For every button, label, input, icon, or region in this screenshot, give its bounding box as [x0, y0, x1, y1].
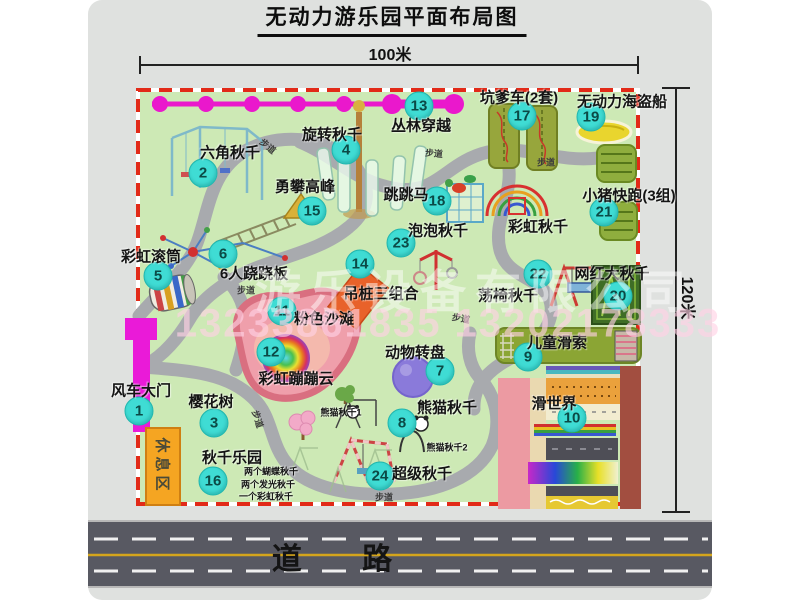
- extra-label-3: 熊猫秋千2: [426, 441, 467, 454]
- attraction-15-label: 勇攀高峰: [275, 176, 335, 197]
- attraction-4-label: 旋转秋千: [302, 124, 362, 145]
- attraction-18-label: 跳跳马: [383, 184, 428, 205]
- walkway-label-2: 步道: [424, 146, 443, 161]
- attraction-24-badge: 24: [366, 462, 395, 491]
- attraction-8-badge: 8: [388, 409, 417, 438]
- attraction-1-badge: 1: [125, 397, 154, 426]
- attraction-3-label: 樱花树: [188, 391, 233, 412]
- attraction-23-label: 泡泡秋千: [408, 220, 468, 241]
- page-title: 无动力游乐园平面布局图: [258, 1, 527, 37]
- extra-label-6: 一个彩虹秋千: [239, 490, 293, 503]
- attraction-12-label: 彩虹蹦蹦云: [258, 368, 333, 389]
- attraction-24-label: 超级秋千: [392, 463, 452, 484]
- attraction-2-badge: 2: [189, 159, 218, 188]
- attraction-16-badge: 16: [199, 467, 228, 496]
- attraction-13-label: 丛林穿越: [391, 115, 451, 136]
- attraction-3-badge: 3: [200, 409, 229, 438]
- rest-area-label: 休息区: [153, 437, 174, 494]
- walkway-label-6: 步道: [375, 491, 393, 504]
- width-dimension-label: 100米: [369, 41, 412, 65]
- attraction-17-label: 坑爹车(2套): [480, 87, 558, 108]
- attraction-19-label: 无动力海盗船: [577, 91, 667, 112]
- extra-label-2: 熊猫秋千1: [320, 406, 361, 419]
- extra-label-1: 彩虹秋千: [508, 216, 568, 237]
- attraction-8-label: 熊猫秋千: [417, 397, 477, 418]
- attraction-5-label: 彩虹滚筒: [121, 246, 181, 267]
- attraction-2-label: 六角秋千: [200, 142, 260, 163]
- watermark-phone: 13233861835 13202178333: [175, 302, 722, 347]
- walkway-label-3: 步道: [537, 156, 555, 169]
- walkway-label-4: 步道: [237, 284, 255, 297]
- attraction-1-label: 风车大门: [111, 380, 171, 401]
- road-label: 道 路: [272, 534, 418, 578]
- attraction-21-label: 小猪快跑(3组): [582, 185, 675, 206]
- attraction-10-label: 滑世界: [531, 393, 576, 414]
- attraction-15-badge: 15: [298, 197, 327, 226]
- screenshot-root: 无动力游乐园平面布局图 100米 120米 休息区 道 路 风车大门1六角秋千2…: [0, 0, 800, 600]
- extra-label-4: 两个蝴蝶秋千: [244, 465, 298, 478]
